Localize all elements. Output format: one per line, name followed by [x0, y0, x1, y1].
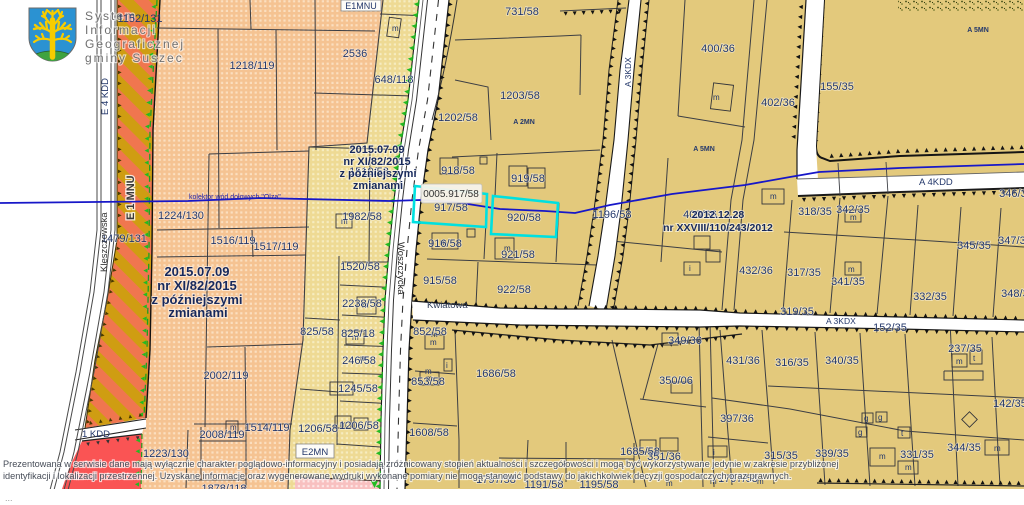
svg-text:z późniejszymi: z późniejszymi: [339, 168, 416, 180]
svg-text:zmianami: zmianami: [353, 180, 403, 192]
svg-text:i: i: [446, 361, 448, 370]
svg-text:E 4 KDD: E 4 KDD: [100, 78, 111, 115]
svg-text:Kleszczowska: Kleszczowska: [99, 212, 110, 272]
svg-text:1202/58: 1202/58: [438, 112, 478, 124]
svg-text:g: g: [858, 428, 862, 437]
svg-text:1152/131: 1152/131: [117, 13, 162, 25]
svg-text:m: m: [392, 24, 399, 33]
svg-text:1224/130: 1224/130: [158, 210, 204, 222]
svg-text:915/58: 915/58: [423, 275, 457, 287]
svg-text:431/36: 431/36: [726, 355, 760, 367]
svg-text:...: ...: [5, 493, 13, 503]
svg-text:1982/58: 1982/58: [342, 211, 382, 223]
svg-text:348/35: 348/35: [1001, 288, 1024, 300]
svg-text:2015.07.09: 2015.07.09: [349, 144, 404, 156]
svg-text:852/58: 852/58: [413, 326, 447, 338]
svg-text:319/35: 319/35: [780, 306, 814, 318]
svg-text:2238/58: 2238/58: [342, 298, 382, 310]
svg-text:A 5MN: A 5MN: [693, 146, 715, 153]
svg-text:2008/119: 2008/119: [199, 429, 244, 441]
svg-text:922/58: 922/58: [497, 284, 531, 296]
svg-text:identyfikacji i lokalizacji pr: identyfikacji i lokalizacji przestrzenne…: [3, 471, 791, 481]
svg-text:i: i: [713, 448, 715, 457]
svg-text:331/35: 331/35: [900, 449, 934, 461]
svg-text:m: m: [713, 93, 720, 102]
svg-text:919/58: 919/58: [511, 173, 545, 185]
svg-text:346/35: 346/35: [999, 188, 1024, 200]
svg-text:i: i: [689, 264, 691, 273]
svg-text:nr XI/82/2015: nr XI/82/2015: [157, 278, 237, 293]
svg-text:246/58: 246/58: [342, 355, 376, 367]
svg-text:1686/58: 1686/58: [476, 368, 516, 380]
svg-text:825/18: 825/18: [341, 328, 375, 340]
svg-text:345/35: 345/35: [957, 240, 991, 252]
svg-text:m: m: [879, 452, 886, 461]
svg-text:1520/58: 1520/58: [340, 261, 380, 273]
svg-text:1517/119: 1517/119: [253, 241, 298, 253]
svg-text:gminy Suszec: gminy Suszec: [85, 51, 184, 65]
svg-text:2015.07.09: 2015.07.09: [164, 264, 229, 279]
svg-text:342/35: 342/35: [836, 204, 870, 216]
svg-text:920/58: 920/58: [507, 212, 541, 224]
svg-text:m: m: [425, 367, 432, 376]
svg-text:341/35: 341/35: [831, 276, 865, 288]
svg-text:Woszczycka: Woszczycka: [395, 242, 406, 295]
svg-text:340/35: 340/35: [825, 355, 859, 367]
svg-text:731/58: 731/58: [505, 6, 539, 18]
svg-text:nr XI/82/2015: nr XI/82/2015: [343, 156, 410, 168]
svg-text:853/58: 853/58: [411, 376, 445, 388]
svg-text:1516/119: 1516/119: [210, 235, 255, 247]
svg-text:350/06: 350/06: [659, 375, 693, 387]
svg-text:1206/58: 1206/58: [298, 423, 338, 435]
svg-text:nr XXVIII/110/243/2012: nr XXVIII/110/243/2012: [663, 222, 773, 234]
svg-text:1196/58: 1196/58: [593, 209, 632, 221]
svg-text:m: m: [994, 444, 1001, 453]
svg-text:zmianami: zmianami: [168, 305, 227, 320]
svg-text:1245/58: 1245/58: [338, 383, 378, 395]
svg-text:332/35: 332/35: [913, 291, 947, 303]
svg-text:921/58: 921/58: [501, 249, 535, 261]
svg-text:155/35: 155/35: [820, 81, 854, 93]
svg-text:E1MNU: E1MNU: [345, 1, 377, 11]
svg-text:825/58: 825/58: [300, 326, 334, 338]
svg-text:1514/119: 1514/119: [244, 422, 289, 434]
svg-text:1 KDD: 1 KDD: [82, 429, 110, 440]
svg-text:g: g: [878, 413, 882, 422]
svg-text:397/36: 397/36: [720, 413, 754, 425]
svg-text:A 3KDX: A 3KDX: [826, 316, 856, 326]
svg-text:1608/58: 1608/58: [409, 427, 449, 439]
svg-text:400/36: 400/36: [701, 43, 735, 55]
svg-text:E 1 MNU: E 1 MNU: [125, 175, 137, 220]
svg-text:432/36: 432/36: [739, 265, 773, 277]
svg-text:1218/119: 1218/119: [229, 60, 274, 72]
svg-text:Geograficznej: Geograficznej: [85, 37, 185, 51]
svg-text:kolektor wód dołowych "Olza": kolektor wód dołowych "Olza": [189, 194, 281, 201]
svg-text:1203/58: 1203/58: [500, 90, 540, 102]
svg-text:Kwiatowa: Kwiatowa: [427, 300, 468, 311]
svg-text:2012.12.28: 2012.12.28: [692, 209, 745, 221]
svg-text:A 4KDD: A 4KDD: [919, 177, 953, 188]
svg-text:648/118: 648/118: [375, 74, 414, 86]
svg-text:402/36: 402/36: [761, 97, 795, 109]
svg-text:E2MN: E2MN: [302, 447, 329, 458]
svg-text:m: m: [430, 338, 437, 347]
svg-text:317/35: 317/35: [787, 267, 821, 279]
svg-text:A 2MN: A 2MN: [513, 119, 535, 126]
svg-text:m: m: [905, 463, 912, 472]
svg-text:g: g: [864, 414, 868, 423]
svg-text:918/58: 918/58: [441, 165, 475, 177]
svg-text:916/58: 916/58: [428, 238, 462, 250]
svg-text:m: m: [848, 265, 855, 274]
svg-text:347/35: 347/35: [998, 235, 1024, 247]
svg-text:344/35: 344/35: [947, 442, 981, 454]
svg-text:237/35: 237/35: [948, 343, 982, 355]
svg-text:142/35: 142/35: [993, 398, 1024, 410]
svg-text:A 5MN: A 5MN: [967, 27, 989, 34]
svg-text:Prezentowana w serwisie dane m: Prezentowana w serwisie dane mają wyłącz…: [3, 459, 838, 469]
svg-text:2536: 2536: [343, 48, 367, 60]
svg-text:917/58: 917/58: [434, 202, 468, 214]
svg-text:152/35: 152/35: [873, 322, 907, 334]
svg-text:318/35: 318/35: [798, 206, 832, 218]
svg-text:Informacji: Informacji: [85, 23, 157, 37]
svg-text:1206/58: 1206/58: [339, 420, 379, 432]
svg-text:A 3KDX: A 3KDX: [623, 57, 633, 87]
svg-text:349/36: 349/36: [668, 335, 702, 347]
svg-text:m: m: [956, 357, 963, 366]
svg-text:2002/119: 2002/119: [203, 370, 248, 382]
svg-text:0005.917/58: 0005.917/58: [423, 189, 479, 200]
svg-text:316/35: 316/35: [775, 357, 809, 369]
svg-text:m: m: [770, 192, 777, 201]
